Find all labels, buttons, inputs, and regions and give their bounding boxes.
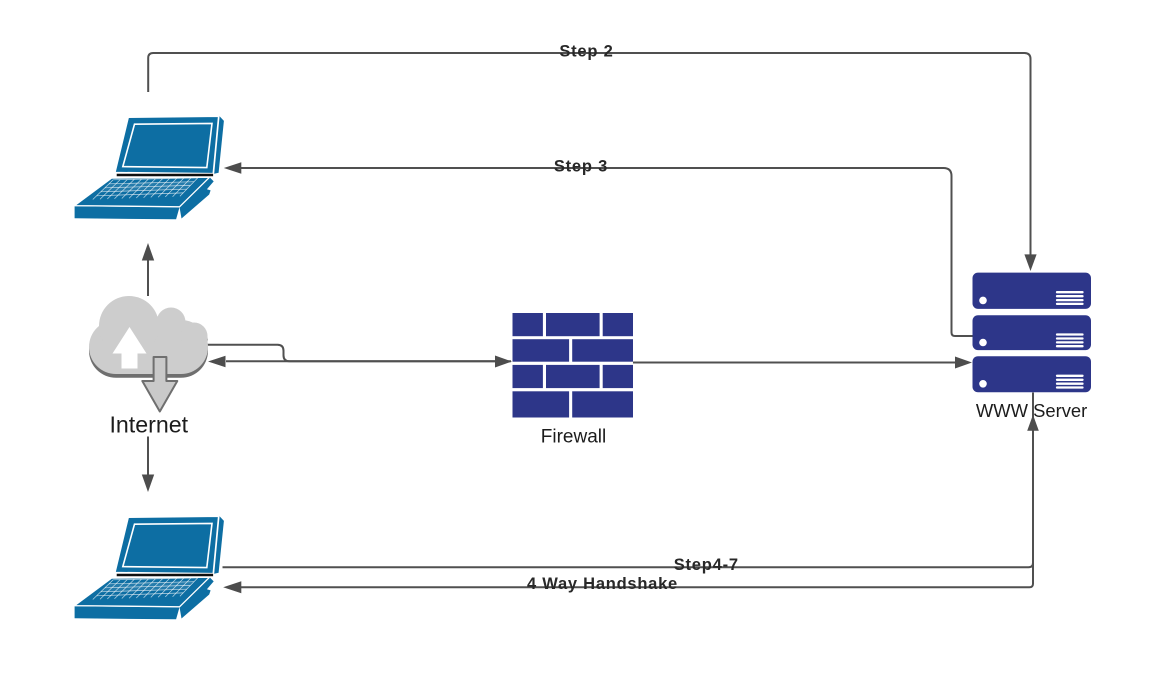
svg-text:WWW Server: WWW Server xyxy=(976,400,1087,421)
svg-text:Firewall: Firewall xyxy=(541,426,606,447)
svg-text:Internet: Internet xyxy=(109,412,188,438)
svg-text:Step 2: Step 2 xyxy=(559,42,613,60)
svg-text:4 Way Handshake: 4 Way Handshake xyxy=(527,575,678,593)
svg-text:Step4-7: Step4-7 xyxy=(674,556,739,574)
svg-text:Step 3: Step 3 xyxy=(554,158,608,176)
